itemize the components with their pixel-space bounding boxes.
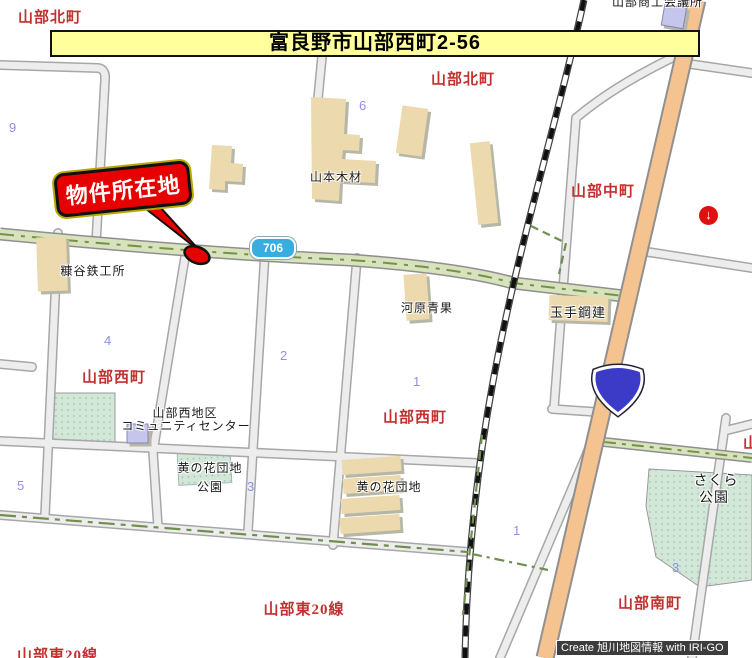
map-overlay-layer [0,0,752,658]
map-credit-badge: Create 旭川地図情報 with IRI-GO [556,640,729,656]
callout-target-dot [182,243,212,268]
map-canvas[interactable]: 富良野市山部西町2-56 物件所在地 706 38 ↓ 山部北町 山部北町 山部… [0,0,752,658]
route-38-shield [594,367,642,415]
address-banner: 富良野市山部西町2-56 [50,30,700,57]
